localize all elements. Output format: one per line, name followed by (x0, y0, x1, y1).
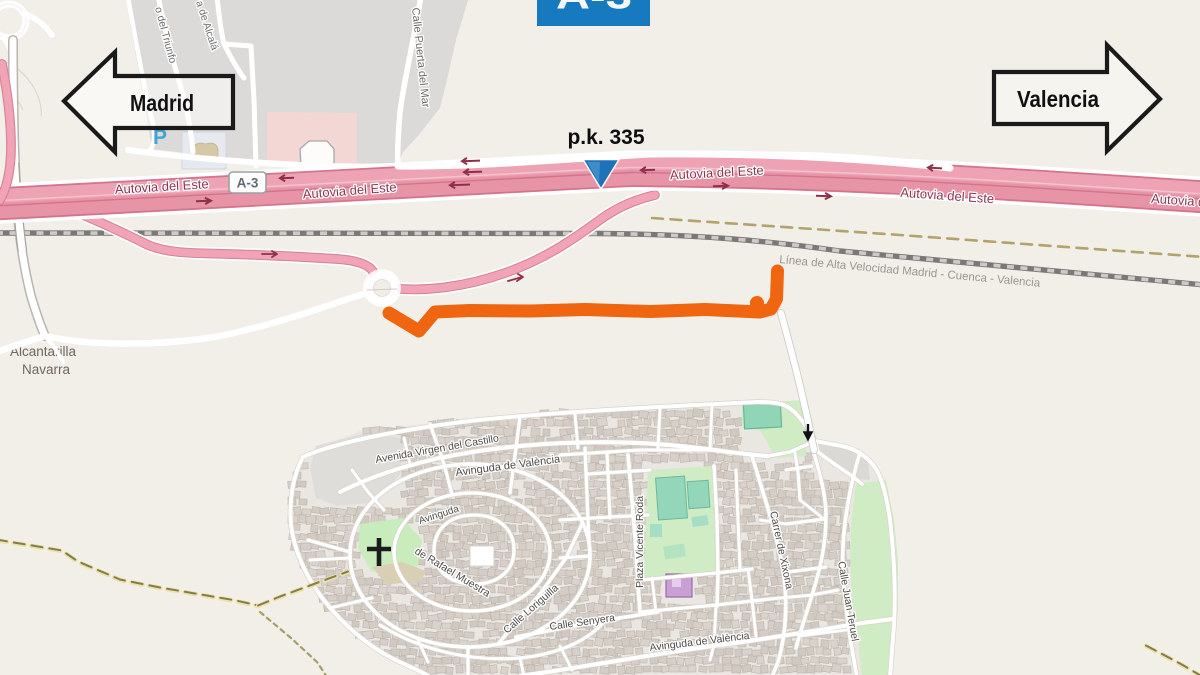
svg-text:A-3: A-3 (237, 176, 259, 191)
svg-text:Valencia: Valencia (1017, 86, 1099, 112)
svg-text:Madrid: Madrid (130, 90, 194, 116)
svg-text:p.k. 335: p.k. 335 (567, 126, 644, 149)
svg-text:Plaza Vicente Roda: Plaza Vicente Roda (634, 496, 646, 588)
svg-text:Navarra: Navarra (22, 362, 71, 377)
svg-text:A-3: A-3 (556, 0, 632, 17)
